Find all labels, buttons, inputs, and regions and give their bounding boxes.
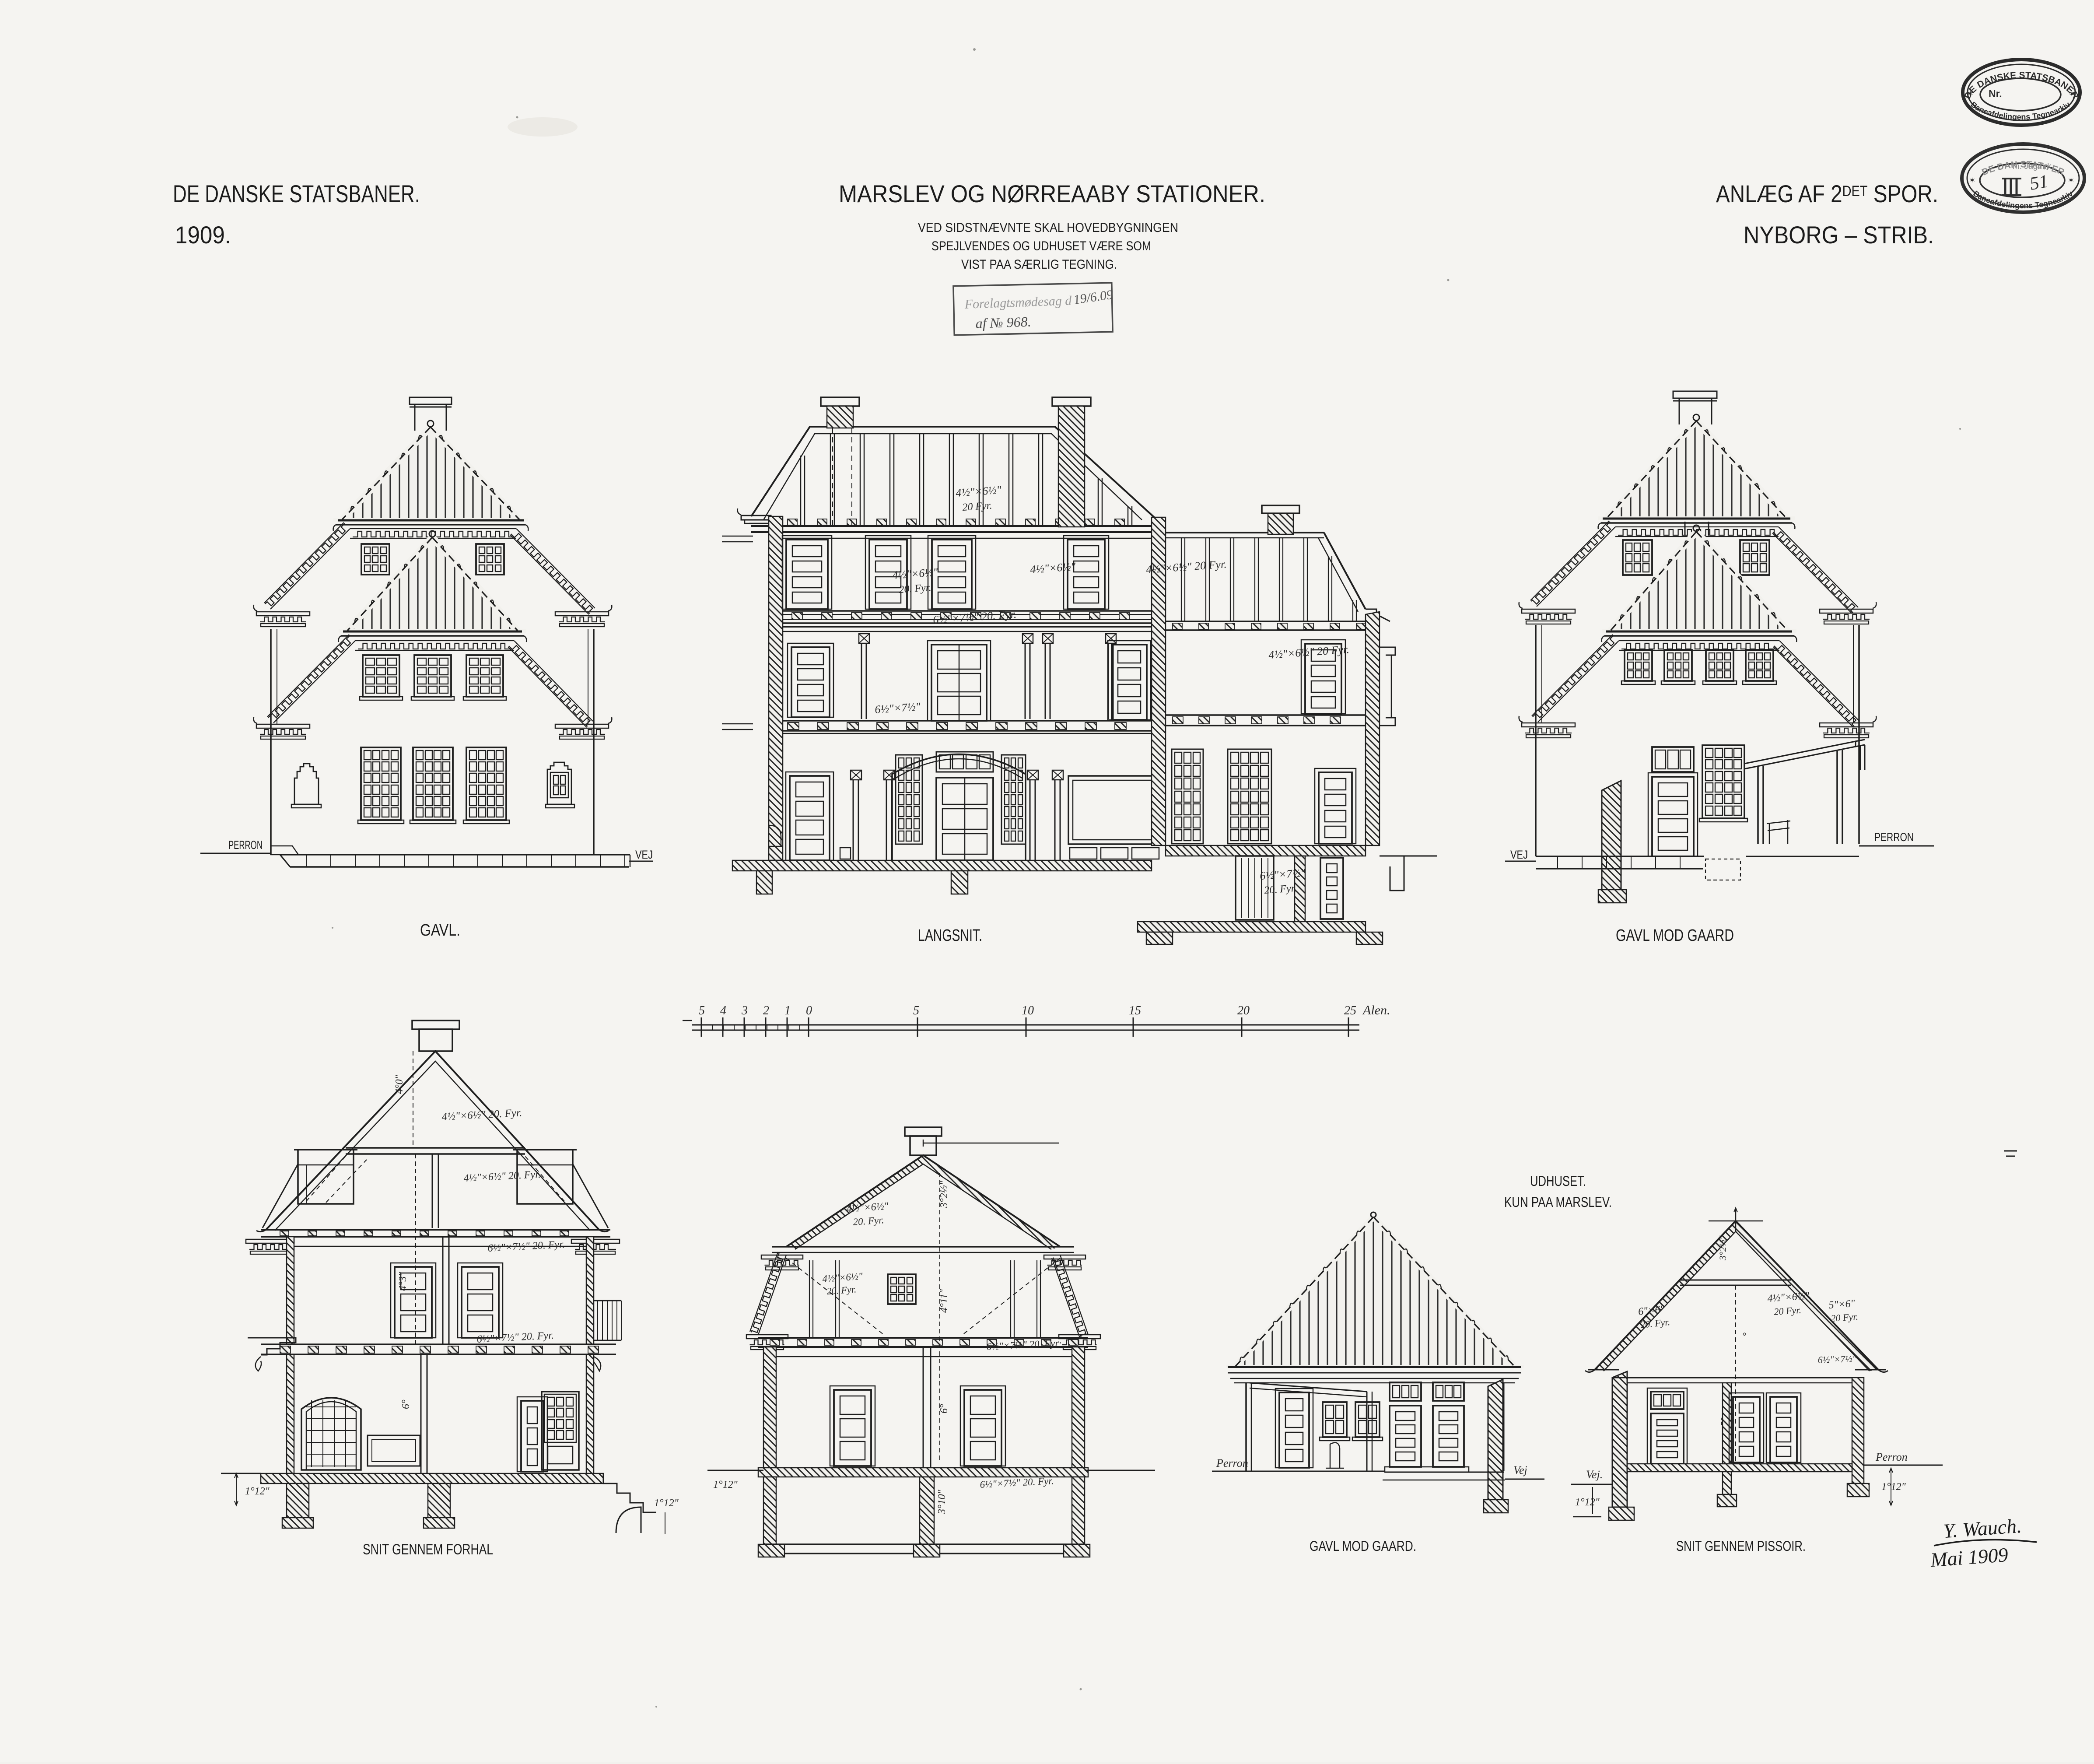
svg-text:10: 10 (1022, 1004, 1034, 1017)
svg-text:2: 2 (763, 1004, 769, 1017)
svg-text:15: 15 (1129, 1004, 1141, 1017)
svg-text:KUN PAA MARSLEV.: KUN PAA MARSLEV. (1504, 1194, 1612, 1210)
svg-text:NYBORG – STRIB.: NYBORG – STRIB. (1744, 221, 1934, 249)
svg-text:6°: 6° (400, 1399, 412, 1409)
svg-text:3°10": 3°10" (936, 1489, 948, 1515)
svg-text:1°12": 1°12" (713, 1479, 738, 1490)
svg-text:Nr.: Nr. (1989, 88, 2002, 99)
svg-text:Vej.: Vej. (1586, 1468, 1603, 1481)
svg-text:Alen.: Alen. (1362, 1003, 1390, 1017)
svg-text:GAVL.: GAVL. (420, 921, 460, 940)
svg-text:UDHUSET.: UDHUSET. (1530, 1173, 1586, 1189)
svg-text:4°0": 4°0" (394, 1074, 405, 1094)
svg-text:4°3": 4°3" (397, 1271, 409, 1291)
svg-text:VEJ: VEJ (1510, 848, 1528, 861)
svg-text:VED SIDSTNÆVNTE SKAL HOVEDB: VED SIDSTNÆVNTE SKAL HOVEDBYGNINGEN (918, 221, 1178, 235)
svg-text:20. Fyr.: 20. Fyr. (853, 1214, 884, 1227)
svg-text:Perron: Perron (1216, 1457, 1248, 1469)
svg-text:4: 4 (720, 1004, 726, 1017)
svg-text:DE DANSKE STATSBANER.: DE DANSKE STATSBANER. (173, 180, 420, 207)
svg-text:6°: 6° (938, 1404, 950, 1413)
svg-text:20. Fyr.: 20. Fyr. (826, 1284, 857, 1297)
svg-text:3: 3 (741, 1004, 748, 1017)
svg-text:20 Fyr.: 20 Fyr. (962, 500, 993, 513)
svg-text:20 Fyr.: 20 Fyr. (1774, 1305, 1802, 1317)
svg-text:ANLÆG AF 2DET SPOR.: ANLÆG AF 2DET SPOR. (1716, 180, 1938, 207)
svg-text:VEJ: VEJ (635, 848, 653, 861)
svg-text:✶: ✶ (1969, 176, 1975, 185)
svg-text:1: 1 (784, 1004, 791, 1017)
svg-text:1°12": 1°12" (654, 1497, 679, 1509)
svg-text:4°11": 4°11" (938, 1289, 950, 1313)
svg-text:GAVL MOD GAARD: GAVL MOD GAARD (1616, 926, 1734, 945)
svg-text:1°12": 1°12" (1881, 1481, 1906, 1493)
svg-text:✶: ✶ (2068, 176, 2074, 185)
svg-text:VIST PAA SÆRLIG TEGNING.: VIST PAA SÆRLIG TEGNING. (961, 257, 1117, 272)
svg-text:✶: ✶ (1967, 89, 1974, 98)
svg-text:MARSLEV OG NØRREAABY STATIO: MARSLEV OG NØRREAABY STATIONER. (839, 180, 1265, 207)
svg-text:1°12": 1°12" (1575, 1497, 1600, 1508)
svg-text:°: ° (1742, 1330, 1746, 1341)
svg-text:5: 5 (913, 1004, 919, 1017)
svg-text:af № 968.: af № 968. (975, 314, 1031, 331)
svg-text:51: 51 (2028, 171, 2050, 194)
svg-text:SNIT GENNEM PISSOIR.: SNIT GENNEM PISSOIR. (1676, 1538, 1806, 1554)
svg-text:3°2½": 3°2½" (938, 1180, 950, 1208)
svg-text:1909.: 1909. (175, 221, 231, 249)
svg-text:20. Fyr.: 20. Fyr. (1264, 883, 1297, 896)
svg-text:✶: ✶ (2069, 89, 2075, 98)
svg-text:1°12": 1°12" (245, 1486, 270, 1497)
svg-text:20. Fyr.: 20. Fyr. (899, 582, 932, 596)
svg-text:m. Jagmrk.: m. Jagmrk. (2013, 162, 2054, 171)
svg-text:PERRON: PERRON (1874, 831, 1914, 844)
svg-text:PERRON: PERRON (228, 838, 263, 852)
svg-text:3°2½": 3°2½" (1717, 1235, 1728, 1261)
svg-text:LANGSNIT.: LANGSNIT. (918, 926, 982, 945)
svg-text:SPEJLVENDES OG UDHUSET VÆRE: SPEJLVENDES OG UDHUSET VÆRE SOM (931, 239, 1151, 253)
svg-text:SNIT GENNEM FORHAL: SNIT GENNEM FORHAL (363, 1541, 493, 1558)
svg-text:20 Fyr.: 20 Fyr. (1831, 1311, 1859, 1324)
svg-text:5: 5 (699, 1004, 705, 1017)
svg-text:Perron: Perron (1875, 1451, 1908, 1463)
svg-text:25: 25 (1344, 1004, 1356, 1017)
svg-text:5"×6": 5"×6" (1828, 1298, 1856, 1311)
svg-text:6½"×7½": 6½"×7½" (1817, 1353, 1857, 1365)
svg-text:0: 0 (806, 1004, 812, 1017)
svg-text:GAVL MOD GAARD.: GAVL MOD GAARD. (1310, 1538, 1416, 1554)
svg-text:Vej: Vej (1513, 1464, 1527, 1476)
svg-text:20: 20 (1237, 1004, 1250, 1017)
